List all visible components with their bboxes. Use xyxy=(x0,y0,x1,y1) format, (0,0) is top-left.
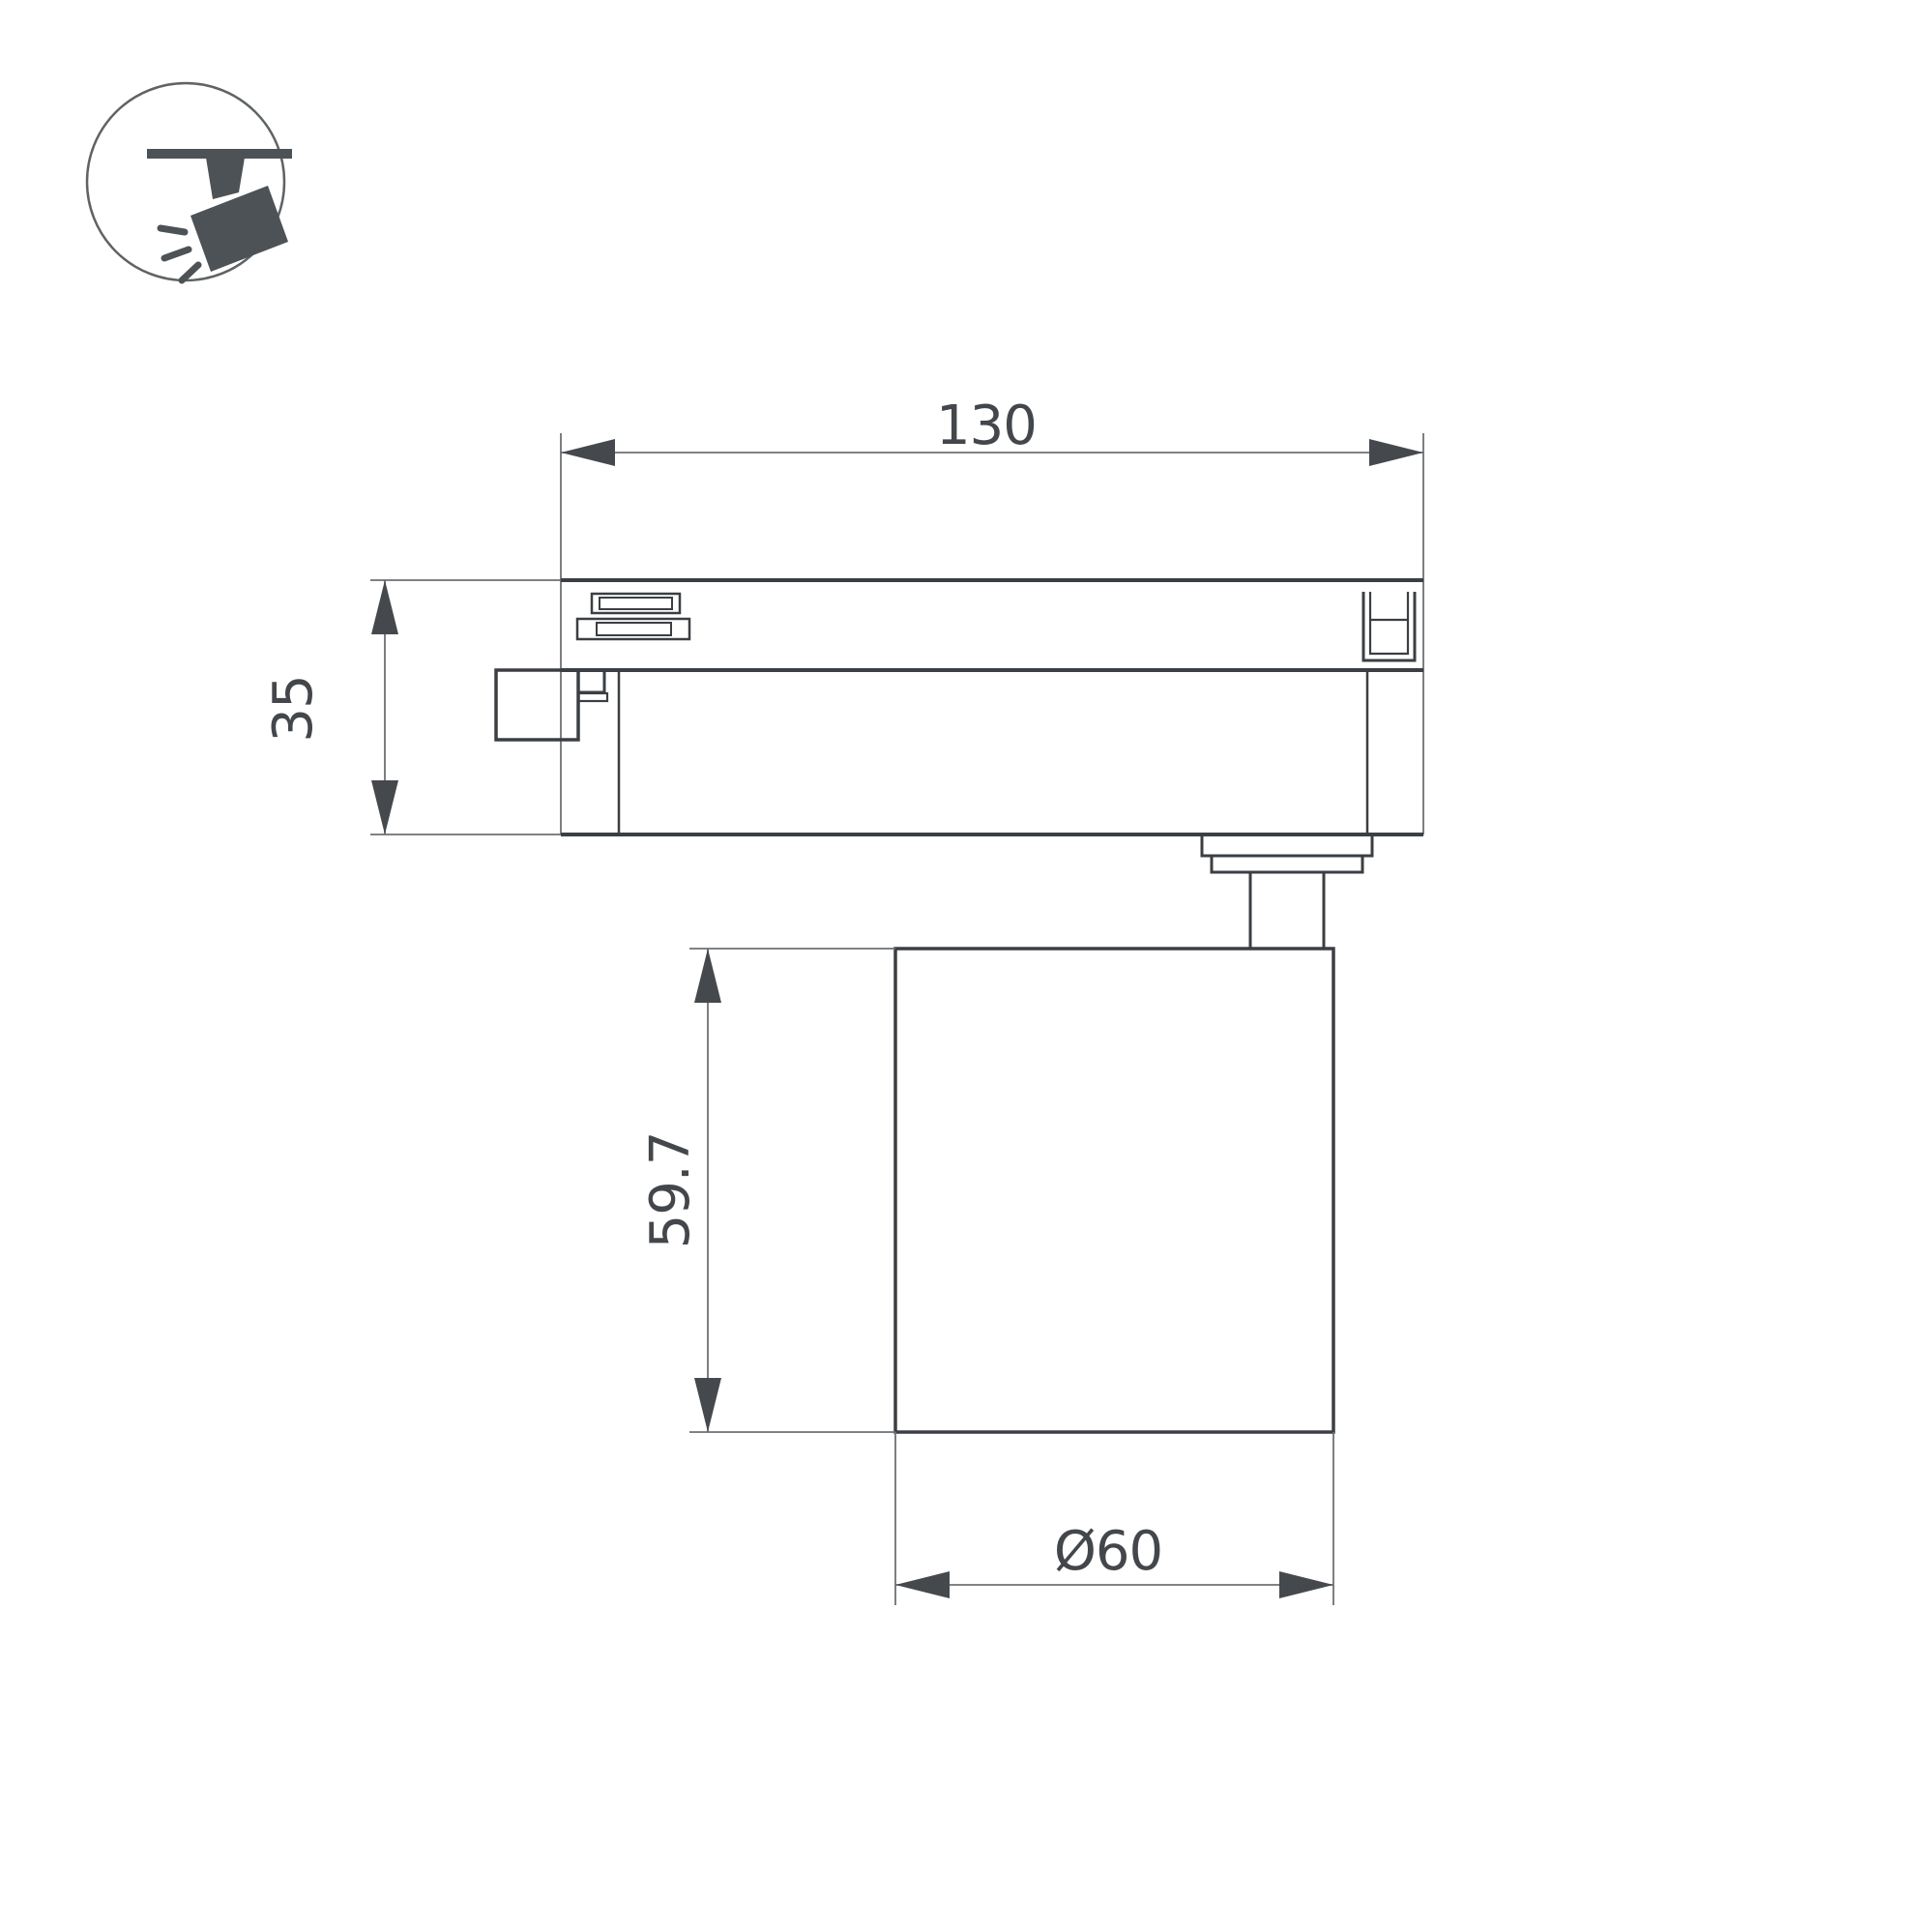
diameter-dimension-label: Ø60 xyxy=(1054,1520,1162,1583)
hinge-plate-lower xyxy=(1212,856,1362,872)
arrowhead-right-icon xyxy=(1279,1571,1333,1598)
arrowhead-down-icon xyxy=(371,780,398,834)
lamp-cylinder-body xyxy=(895,949,1333,1432)
arrowhead-right-icon xyxy=(1369,439,1423,466)
latch-block xyxy=(496,670,578,740)
width-dimension-label: 130 xyxy=(936,395,1037,457)
track-adapter xyxy=(496,580,1423,834)
arrowhead-up-icon xyxy=(371,580,398,634)
track-height-dimension-label: 35 xyxy=(262,675,325,742)
contact-clip-lower-inner xyxy=(597,623,671,635)
diameter-dimension: Ø60 xyxy=(895,1432,1333,1605)
technical-drawing-canvas: 130 35 xyxy=(0,0,1932,1932)
arrowhead-up-icon xyxy=(694,949,721,1003)
mount-stem xyxy=(1250,872,1324,949)
icon-light-ray-1 xyxy=(161,228,185,232)
technical-drawing-page: 130 35 xyxy=(0,0,1932,1932)
latch-step xyxy=(578,670,604,692)
track-height-dimension: 35 xyxy=(262,580,561,834)
latch-spring-plate xyxy=(578,693,607,701)
track-spotlight-icon xyxy=(87,83,292,280)
width-dimension: 130 xyxy=(561,395,1423,834)
mount-assembly xyxy=(1202,834,1372,949)
body-height-dimension-label: 59.7 xyxy=(639,1132,702,1249)
icon-ceiling-track-bar xyxy=(147,149,292,159)
arrowhead-left-icon xyxy=(895,1571,950,1598)
arrowhead-left-icon xyxy=(561,439,615,466)
contact-clip-upper-inner xyxy=(600,598,672,609)
body-height-dimension: 59.7 xyxy=(639,949,895,1432)
hinge-plate-upper xyxy=(1202,834,1372,856)
lock-hook-inner xyxy=(1370,592,1408,654)
arrowhead-down-icon xyxy=(694,1378,721,1432)
